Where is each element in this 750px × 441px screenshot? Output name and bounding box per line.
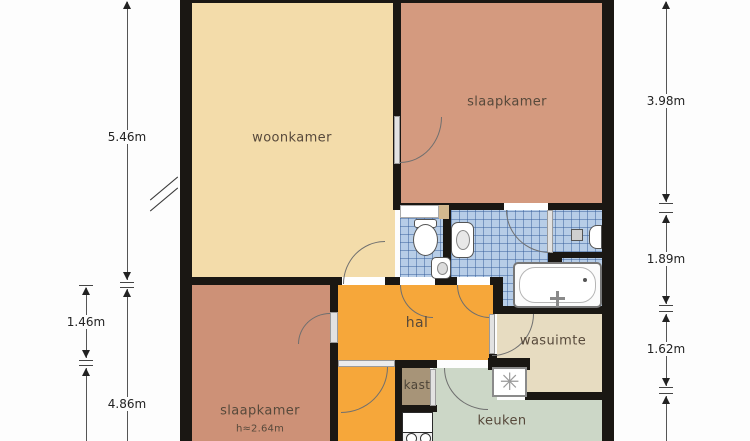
stove-burner-1 [406,433,417,441]
toilet-bowl-icon [413,224,438,256]
wall-kast-bottom [395,405,437,412]
wall-kast-left [395,360,402,441]
duct-block [439,205,449,219]
dimension-label: 5.46m [105,130,149,144]
section-cut-mark-1 [150,177,178,201]
label-slaapkamer-bottom: slaapkamer [220,404,300,419]
dim-arrow [662,314,670,322]
dim-tick [659,203,673,204]
wall-sink-icon [589,225,602,249]
label-slaapkamer-top: slaapkamer [467,95,547,110]
dim-arrow [662,215,670,223]
dim-arrow [662,1,670,9]
dim-arrow [662,194,670,202]
dim-arrow [662,396,670,404]
dim-arrow [123,289,131,297]
dimension-label: 4.86m [105,397,149,411]
dim-arrow [82,368,90,376]
bathtub-drain [583,278,587,282]
dim-tick [120,287,134,288]
label-wasuimte: wasuimte [520,334,586,349]
section-cut-mark-2 [150,188,178,212]
dimension-label: 1.62m [644,342,688,356]
doorway-hal-bathroom [457,277,490,285]
dimension-line-left-main-2 [127,289,128,441]
dimension-line-left-sec-2 [86,368,87,441]
dim-tick [79,285,93,286]
dim-tick [659,212,673,213]
dim-arrow [82,287,90,295]
label-kast: kast [404,378,431,392]
wall-outer-left [180,0,192,441]
bathroom-sink-bowl [456,230,470,250]
dim-tick [659,311,673,312]
washing-machine-icon: ✳ [492,367,527,397]
doorway-hal-corridor [338,360,395,367]
wall-wasuimte-bottom [525,392,602,400]
dim-tick [659,305,673,306]
kitchen-counter [402,412,433,433]
stove-burner-2 [420,433,431,441]
wall-hal-left [330,285,338,441]
dim-arrow [123,272,131,280]
floor-plan: ✳ woonkamer slaapkamer slaapkamer h≈2.64… [0,0,750,441]
label-slaapkamer-height: h≈2.64m [236,424,284,435]
dim-arrow [662,378,670,386]
doorway-slaapkamer-bathroom [504,203,548,210]
dimension-label: 1.46m [64,315,108,329]
door-leaf-hal-slaapkamer [330,312,338,343]
washing-machine-symbol: ✳ [499,368,519,396]
dim-tick [659,393,673,394]
doorway-hal-toilet [400,277,435,285]
label-hal: hal [406,315,429,331]
toilet-niche [400,205,439,218]
door-leaf-kast [430,369,436,406]
label-keuken: keuken [477,414,526,429]
dim-arrow [82,350,90,358]
dimension-label: 3.98m [644,94,688,108]
bathtub-faucet-bar [550,297,565,300]
corner-basin-bowl [437,262,448,275]
dim-arrow [123,1,131,9]
dim-arrow [662,296,670,304]
dim-tick [79,365,93,366]
label-woonkamer: woonkamer [252,131,332,146]
dim-tick [659,387,673,388]
dimension-label: 1.89m [644,252,688,266]
dim-tick [79,360,93,361]
wall-outer-right [602,0,614,441]
shower-control-icon [571,229,583,241]
dim-tick [120,282,134,283]
wall-woonkamer-slaapkamer [393,3,401,205]
